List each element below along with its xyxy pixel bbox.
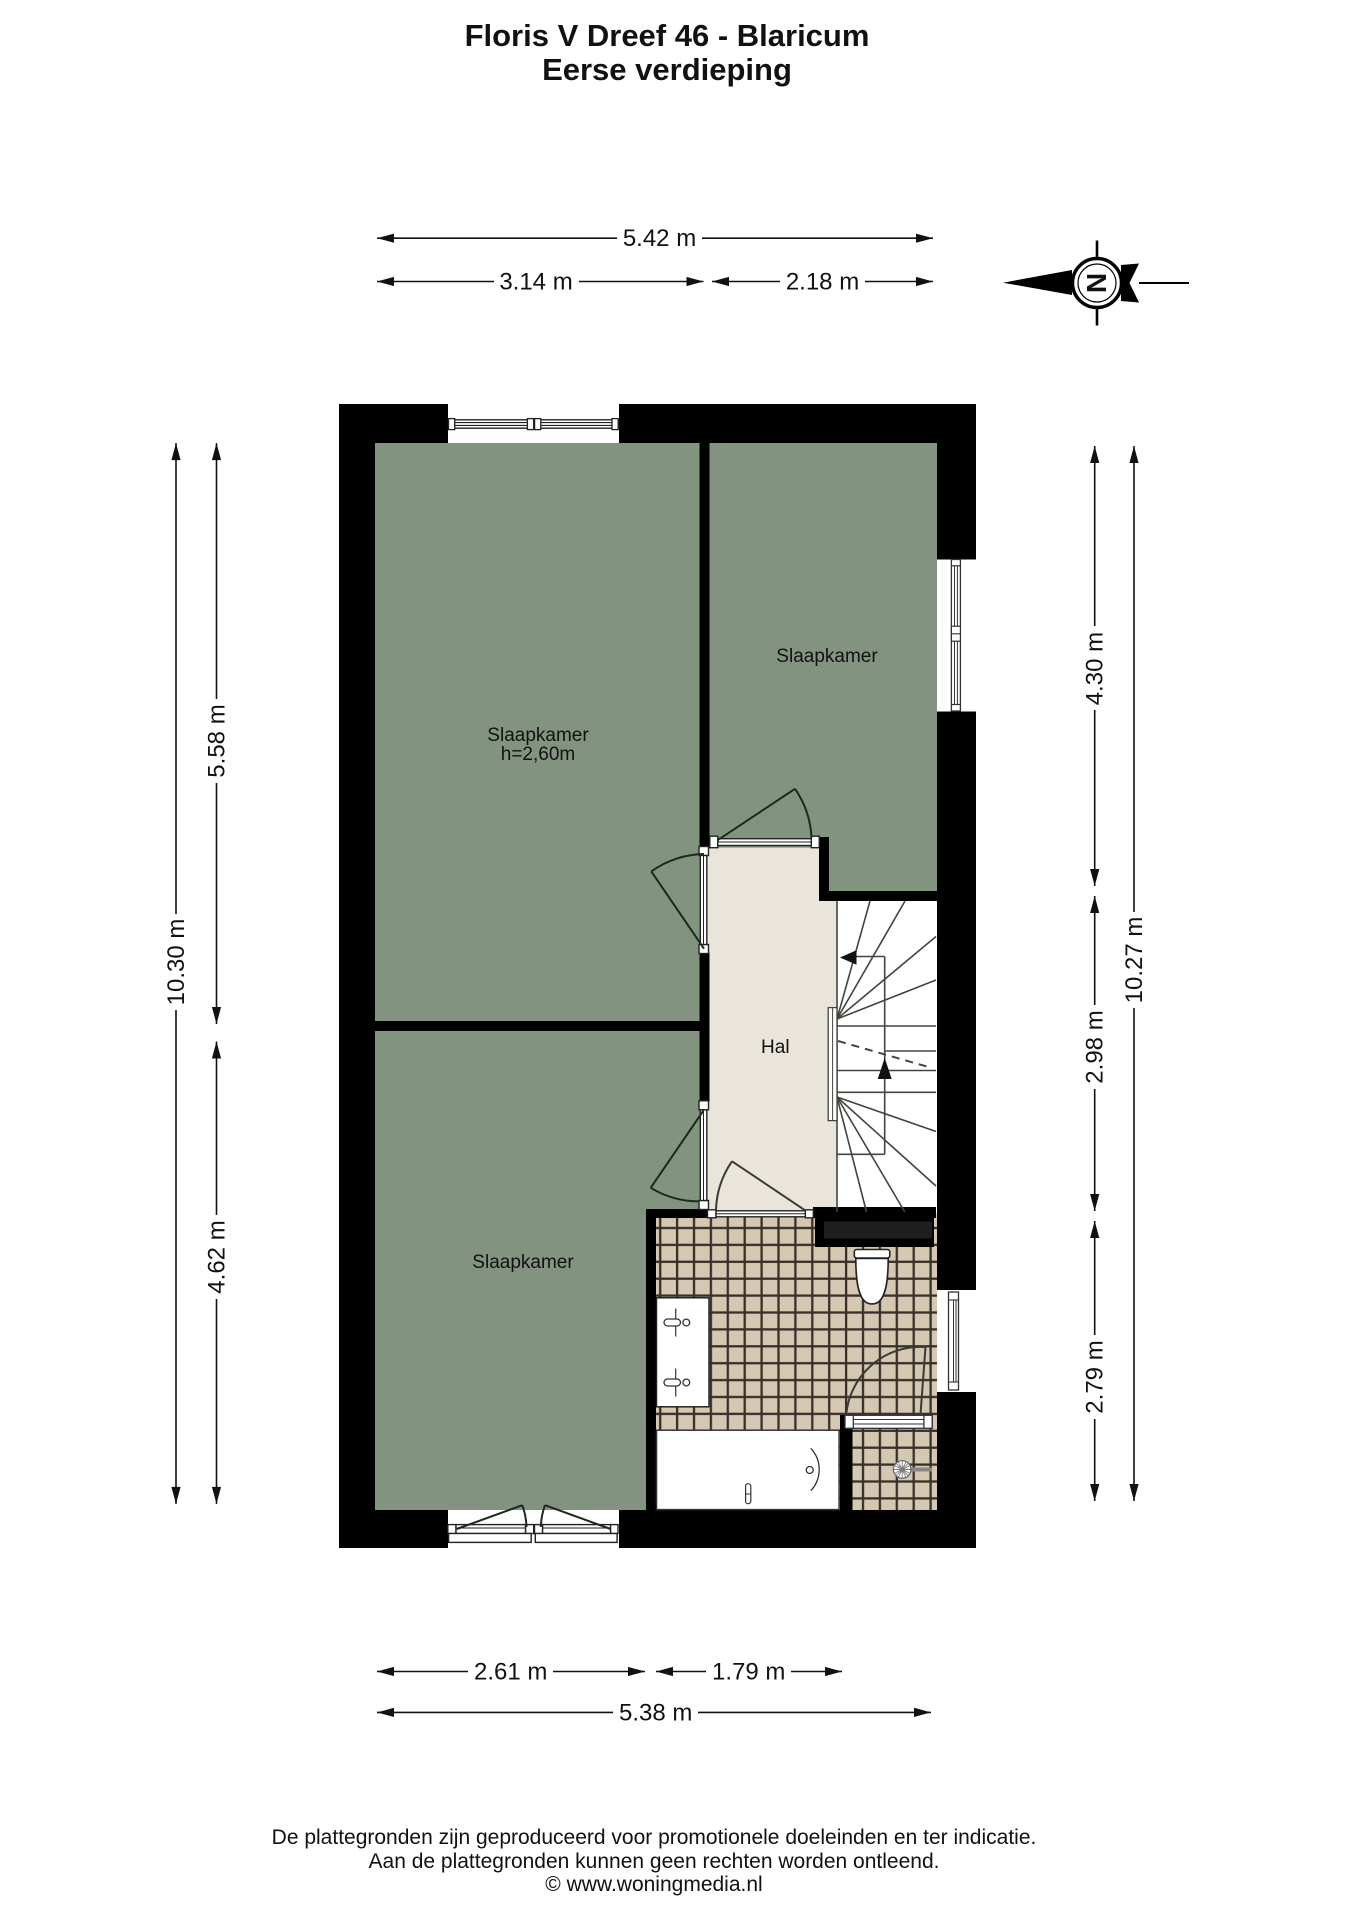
svg-text:2.98 m: 2.98 m	[1082, 1010, 1109, 1083]
svg-text:2.18 m: 2.18 m	[786, 269, 859, 296]
svg-text:Hal: Hal	[761, 1037, 790, 1058]
svg-text:5.38 m: 5.38 m	[619, 1700, 692, 1727]
svg-text:5.42 m: 5.42 m	[623, 225, 696, 252]
svg-text:Slaapkamer: Slaapkamer	[487, 725, 589, 746]
svg-text:Aan de plattegronden kunnen ge: Aan de plattegronden kunnen geen rechten…	[369, 1850, 940, 1873]
svg-text:De plattegronden zijn geproduc: De plattegronden zijn geproduceerd voor …	[272, 1826, 1037, 1849]
svg-text:3.14 m: 3.14 m	[499, 269, 572, 296]
svg-text:5.58 m: 5.58 m	[204, 704, 231, 777]
svg-text:10.27 m: 10.27 m	[1121, 917, 1148, 1004]
svg-text:N: N	[1081, 273, 1112, 293]
svg-text:h=2,60m: h=2,60m	[501, 744, 575, 765]
svg-text:1.79 m: 1.79 m	[712, 1659, 785, 1686]
svg-text:Slaapkamer: Slaapkamer	[472, 1252, 574, 1273]
svg-text:Floris V Dreef 46 - Blaricum: Floris V Dreef 46 - Blaricum	[465, 18, 870, 53]
svg-text:2.61 m: 2.61 m	[474, 1659, 547, 1686]
svg-text:4.62 m: 4.62 m	[204, 1220, 231, 1293]
svg-text:10.30 m: 10.30 m	[163, 919, 190, 1006]
svg-text:Eerse verdieping: Eerse verdieping	[542, 52, 792, 87]
svg-text:Slaapkamer: Slaapkamer	[776, 646, 878, 667]
svg-text:2.79 m: 2.79 m	[1082, 1340, 1109, 1413]
svg-text:4.30 m: 4.30 m	[1082, 632, 1109, 705]
svg-text:© www.woningmedia.nl: © www.woningmedia.nl	[545, 1873, 762, 1896]
